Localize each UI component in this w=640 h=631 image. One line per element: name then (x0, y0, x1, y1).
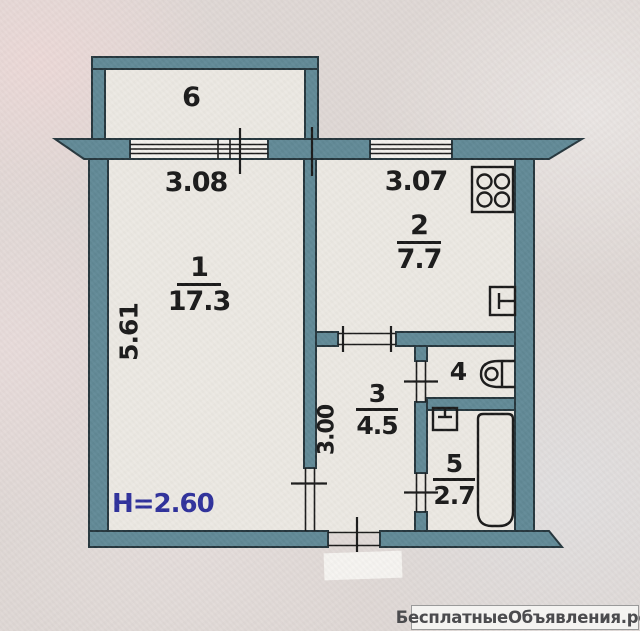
hall-bath-wall-stub (415, 512, 427, 531)
bathroom-label: 5 2.7 (409, 451, 499, 509)
kitchen-hall-wall-stub (316, 332, 338, 346)
kitchen-window (370, 139, 452, 159)
balcony-number: 6 (161, 82, 221, 113)
right-wall (515, 150, 534, 547)
ceiling-height-note: H=2.60 (112, 489, 214, 519)
left-wall (89, 139, 108, 547)
kitchen-number: 2 (397, 212, 441, 244)
floor-plan-drawing (0, 0, 640, 631)
hallway-label: 3 4.5 (332, 381, 422, 439)
balcony-top-wall (92, 57, 318, 69)
bottom-wall-right (380, 531, 562, 547)
hall-wc-wall-stub-top (415, 346, 427, 361)
top-wall-middle (268, 139, 370, 159)
kitchen-area: 7.7 (397, 244, 442, 274)
top-wall-right (452, 139, 582, 159)
bottom-wall-left (89, 531, 328, 547)
living-room-number: 1 (177, 254, 221, 286)
hallway-number: 3 (356, 381, 398, 411)
watermark: БесплатныеОбъявления.рф (411, 605, 639, 630)
entrance-door (328, 533, 380, 546)
living-room-label: 1 17.3 (154, 254, 244, 316)
whiteout-patch (324, 551, 403, 581)
top-wall-left (55, 139, 130, 159)
dim-living-room-width: 3.08 (146, 167, 246, 198)
kitchen-label: 2 7.7 (374, 212, 464, 274)
living-room-window (130, 139, 268, 159)
floor-plan: 6 3.08 3.07 1 17.3 2 7.7 3 4.5 4 5 2.7 5… (0, 0, 640, 631)
bathroom-number: 5 (433, 451, 475, 481)
kitchen-wc-wall (396, 332, 515, 346)
dim-kitchen-width: 3.07 (366, 166, 466, 197)
hallway-area: 4.5 (356, 411, 397, 439)
bathroom-area: 2.7 (433, 481, 474, 509)
toilet-number: 4 (438, 357, 478, 386)
living-room-area: 17.3 (168, 286, 231, 316)
